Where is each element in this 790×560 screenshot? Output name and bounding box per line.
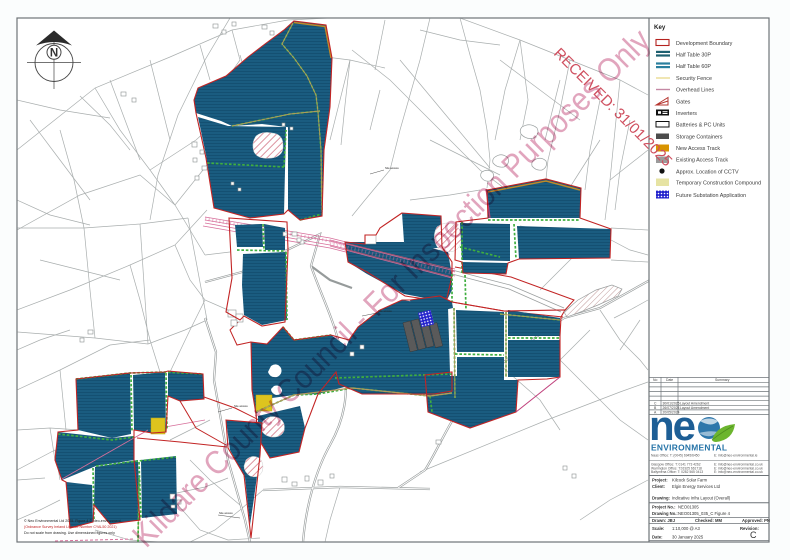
svg-text:Batteries & PC Units: Batteries & PC Units xyxy=(676,123,725,129)
svg-text:E: info@neo-environmental.ie: E: info@neo-environmental.ie xyxy=(714,454,758,458)
svg-text:New Access Track: New Access Track xyxy=(676,146,720,152)
svg-text:Drawn: JBJ: Drawn: JBJ xyxy=(652,518,676,523)
svg-text:Development Boundary: Development Boundary xyxy=(676,41,733,47)
svg-text:Summary: Summary xyxy=(715,378,730,382)
svg-text:NEO01305: NEO01305 xyxy=(678,505,699,510)
svg-text:N: N xyxy=(50,47,58,59)
svg-text:Do not scale from drawing. Use: Do not scale from drawing. Use dimension… xyxy=(24,531,115,535)
svg-text:Client:: Client: xyxy=(652,484,665,489)
svg-text:Indicative Infra Layout (Overa: Indicative Infra Layout (Overall) xyxy=(672,496,731,501)
svg-text:30 January 2025: 30 January 2025 xyxy=(672,535,704,540)
svg-text:Drawing:: Drawing: xyxy=(652,496,670,501)
svg-text:Approved: PN: Approved: PN xyxy=(742,518,770,523)
svg-text:Project No.:: Project No.: xyxy=(652,505,676,510)
svg-text:Date: Date xyxy=(666,378,673,382)
svg-text:1:10,000 @ A3: 1:10,000 @ A3 xyxy=(672,526,700,531)
svg-text:Future Substation Application: Future Substation Application xyxy=(676,193,746,199)
svg-text:Drawing No.:: Drawing No.: xyxy=(652,511,678,516)
svg-text:Kilcock Solar Farm: Kilcock Solar Farm xyxy=(672,478,708,483)
svg-text:Date:: Date: xyxy=(652,535,662,540)
svg-text:C: C xyxy=(750,530,757,540)
svg-text:Security Fence: Security Fence xyxy=(676,76,712,82)
svg-text:Half Table 60P: Half Table 60P xyxy=(676,64,711,70)
svg-text:No: No xyxy=(653,378,657,382)
svg-text:Elgin Energy Services Ltd: Elgin Energy Services Ltd xyxy=(672,484,721,489)
svg-text:Existing Access Track: Existing Access Track xyxy=(676,158,728,164)
svg-text:Site access: Site access xyxy=(219,511,233,515)
svg-text:Scale:: Scale: xyxy=(652,526,664,531)
svg-text:Naas Office: T: (0045) 6945/64: Naas Office: T: (0045) 6945/6450 xyxy=(651,454,700,458)
svg-text:Key: Key xyxy=(654,24,666,31)
svg-text:Half Table 30P: Half Table 30P xyxy=(676,53,711,59)
svg-text:Inverters: Inverters xyxy=(676,111,697,117)
svg-text:Site access: Site access xyxy=(385,166,399,170)
svg-text:Storage Containers: Storage Containers xyxy=(676,134,723,140)
svg-text:ENVIRONMENTAL: ENVIRONMENTAL xyxy=(651,443,727,453)
svg-text:Checked: MM: Checked: MM xyxy=(695,518,723,523)
svg-text:Gates: Gates xyxy=(676,100,691,106)
svg-text:Overhead Lines: Overhead Lines xyxy=(676,88,714,94)
svg-text:Temporary Construction Compoun: Temporary Construction Compound xyxy=(676,181,761,187)
svg-text:NEO01305_035_C Figure 4: NEO01305_035_C Figure 4 xyxy=(678,511,731,516)
svg-text:E: info@neo-environmental.co.u: E: info@neo-environmental.co.uk xyxy=(714,470,763,474)
svg-text:(Ordnance Survey Ireland Licen: (Ordnance Survey Ireland Licence Number … xyxy=(24,525,117,529)
svg-text:Approx. Location of CCTV: Approx. Location of CCTV xyxy=(676,169,739,175)
svg-text:© Neo Environmental Ltd 2025.: © Neo Environmental Ltd 2025. Figure 4 ©… xyxy=(24,519,121,523)
svg-text:Ballymena Office: T: 0282 565: Ballymena Office: T: 0282 565 0413 xyxy=(651,470,703,474)
svg-text:Project:: Project: xyxy=(652,478,668,483)
